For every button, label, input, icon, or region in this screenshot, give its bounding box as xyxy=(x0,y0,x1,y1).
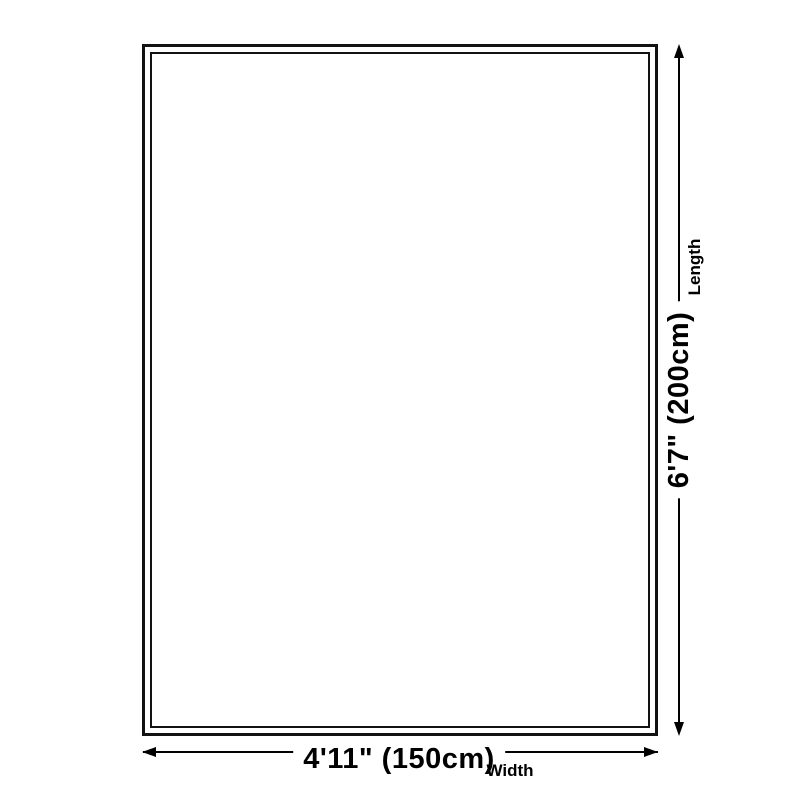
arrow-down-icon xyxy=(674,722,684,736)
product-outline-outer xyxy=(142,44,658,736)
arrow-right-icon xyxy=(644,747,658,757)
width-label: Width xyxy=(486,761,533,781)
arrow-up-icon xyxy=(674,44,684,58)
dimension-diagram: 6'7" (200cm) Length 4'11" (150cm) Width xyxy=(0,0,800,800)
arrow-left-icon xyxy=(142,747,156,757)
width-value: 4'11" (150cm) xyxy=(293,741,505,777)
length-label: Length xyxy=(685,239,705,296)
length-value: 6'7" (200cm) xyxy=(661,302,697,499)
product-outline-inner xyxy=(150,52,650,728)
